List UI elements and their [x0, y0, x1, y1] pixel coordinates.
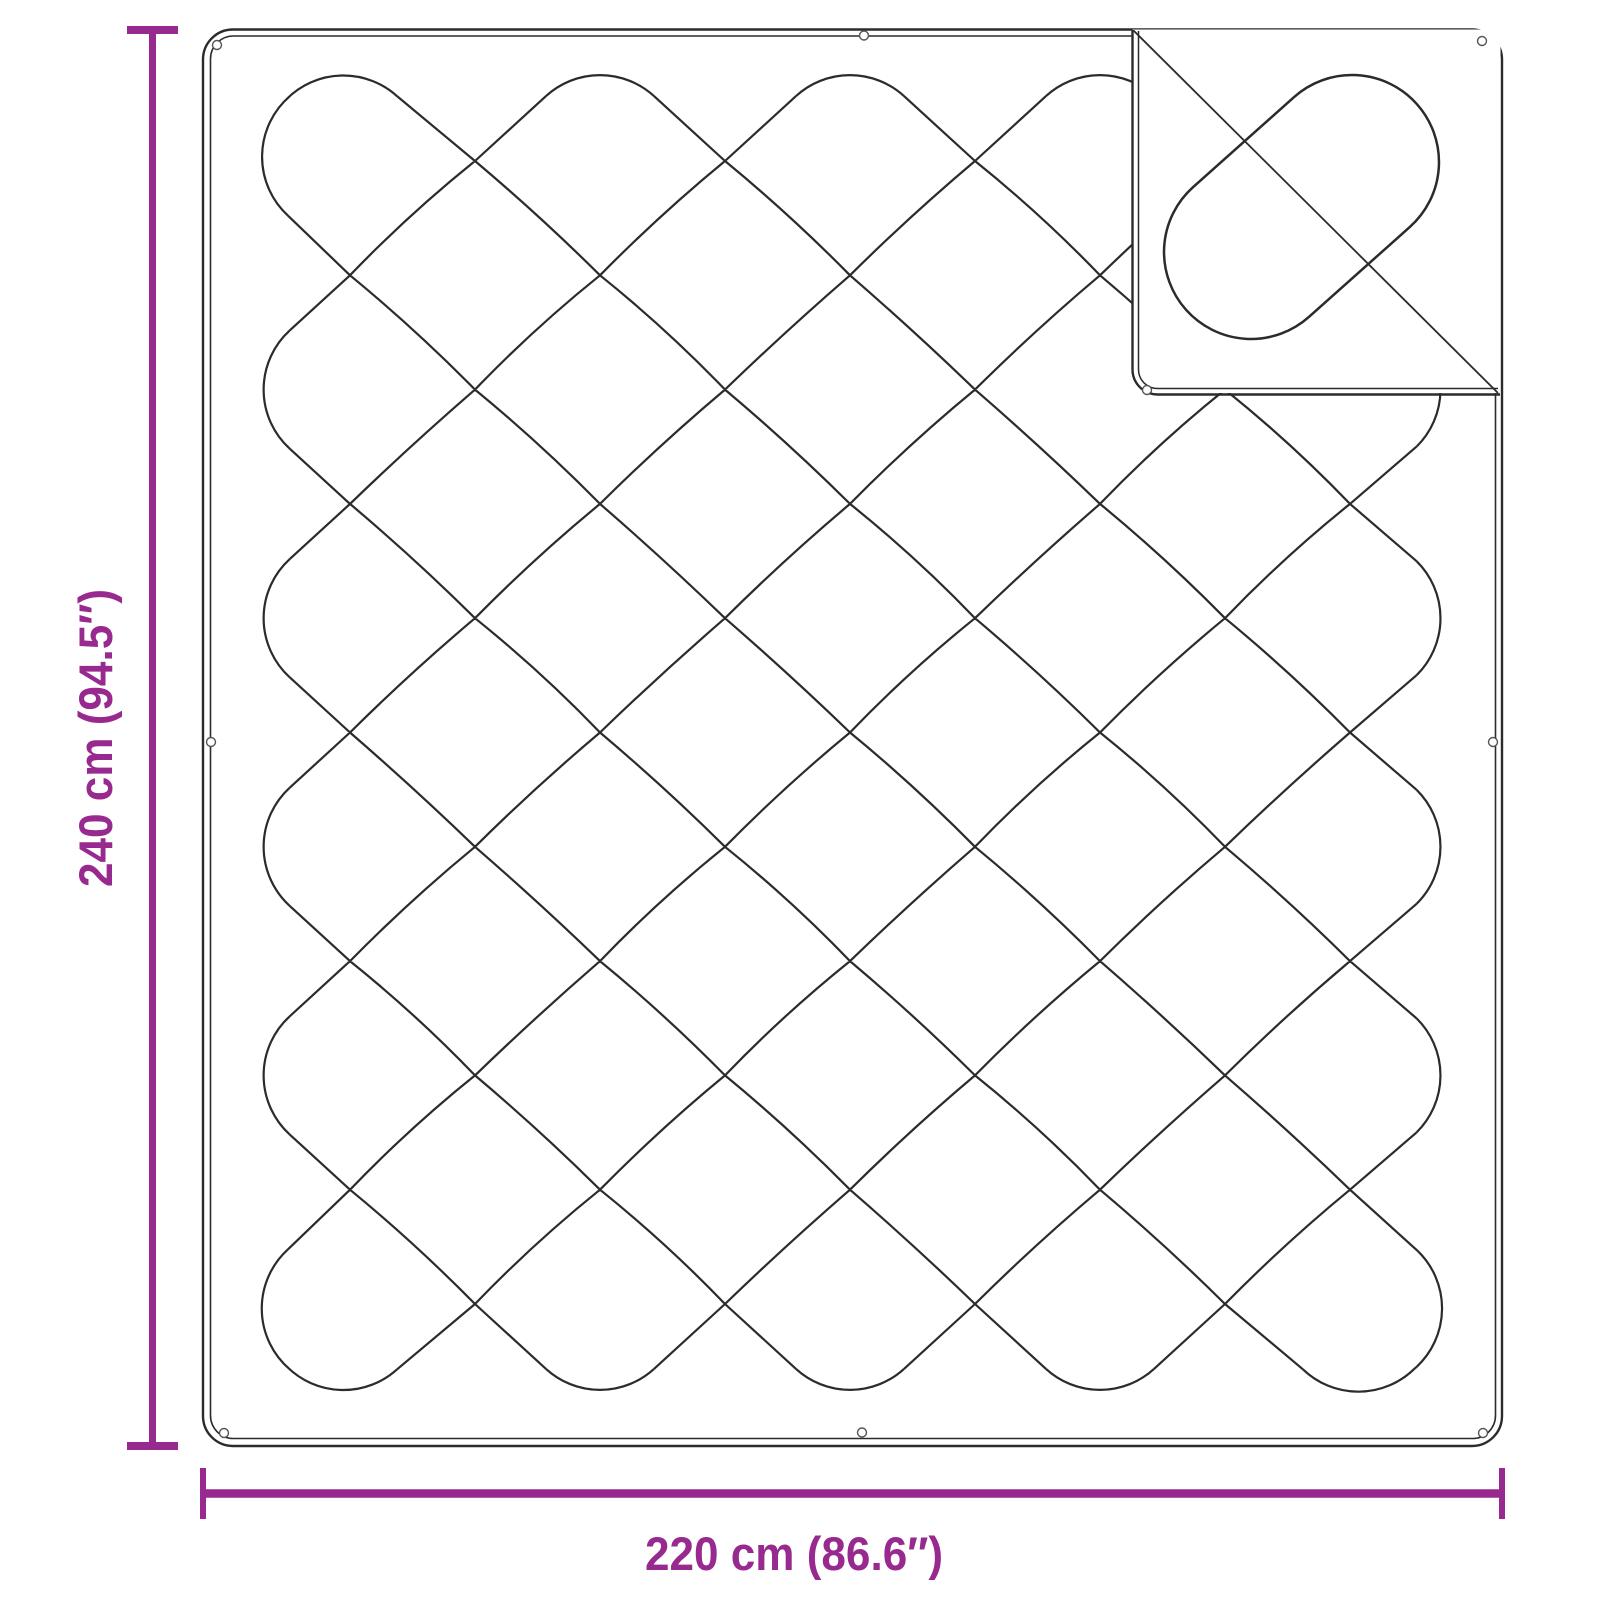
svg-text:240 cm (94.5″): 240 cm (94.5″)	[70, 589, 123, 887]
svg-text:220 cm (86.6″): 220 cm (86.6″)	[645, 1528, 943, 1581]
